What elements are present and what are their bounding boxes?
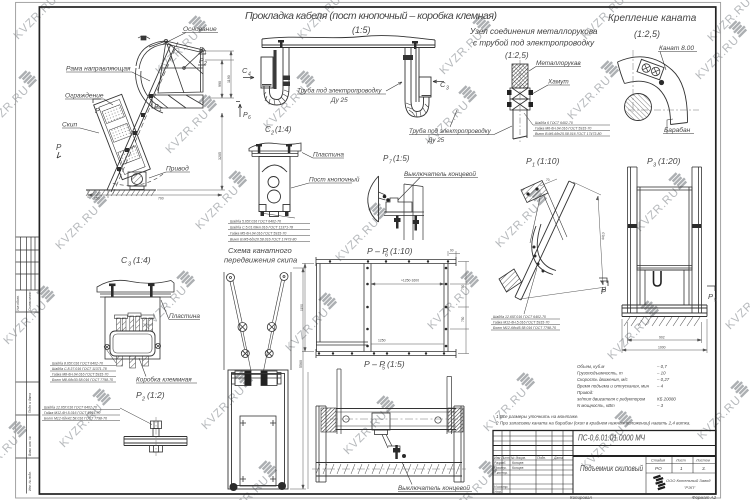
svg-text:3: 3 (446, 86, 449, 92)
svg-text:Ограждение: Ограждение (65, 92, 104, 100)
svg-text:Инв. № подл.: Инв. № подл. (28, 471, 32, 491)
svg-text:Винт В.М6-6дх25.58.016 ГОСТ 17: Винт В.М6-6дх25.58.016 ГОСТ 17473-80 (535, 132, 601, 136)
svg-text:(1:20): (1:20) (658, 156, 681, 166)
svg-text:– 4: – 4 (656, 384, 664, 389)
svg-text:– 0,27: – 0,27 (656, 377, 670, 382)
svg-text:150: 150 (94, 197, 100, 201)
svg-text:Болт М8-6дх30.58.016 ГОСТ 7798: Болт М8-6дх30.58.016 ГОСТ 7798-70 (52, 378, 113, 382)
svg-text:РО: РО (655, 466, 662, 471)
svg-text:Объем, куб.м: Объем, куб.м (577, 364, 604, 369)
svg-text:Копцев: Копцев (512, 461, 524, 465)
svg-text:– 3: – 3 (656, 403, 664, 408)
svg-text:Винт В.М5-6дх20.58.016 ГОСТ 17: Винт В.М5-6дх20.58.016 ГОСТ 17473-80 (230, 238, 296, 242)
svg-text:Пластина: Пластина (169, 313, 200, 320)
svg-text:6: 6 (385, 253, 389, 259)
svg-text:Утв.: Утв. (494, 490, 502, 494)
svg-text:Схема канатного: Схема канатного (228, 246, 292, 255)
svg-text:Шайба 12.65Г.016 ГОСТ 6402-70: Шайба 12.65Г.016 ГОСТ 6402-70 (493, 315, 546, 319)
svg-text:– 10: – 10 (656, 371, 666, 376)
svg-text:Гайка М5-6Н.04.016 ГОСТ 5915-7: Гайка М5-6Н.04.016 ГОСТ 5915-70 (230, 232, 286, 236)
svg-text:Узел соединения металлорукова: Узел соединения металлорукова (469, 27, 598, 36)
svg-text:2: 2 (270, 131, 274, 137)
svg-text:– 0,7: – 0,7 (656, 364, 667, 369)
svg-text:1 Все размеры уточнить на монт: 1 Все размеры уточнить на монтаже. (496, 414, 579, 419)
svg-text:Время подъема и отпускания, ми: Время подъема и отпускания, мин (577, 384, 650, 389)
svg-text:990: 990 (218, 81, 222, 87)
svg-text:(1:4): (1:4) (133, 255, 151, 265)
svg-text:Подп. и дата: Подп. и дата (28, 393, 32, 413)
svg-text:КБ 20080: КБ 20080 (657, 397, 676, 402)
svg-text:Пост кнопочный: Пост кнопочный (309, 176, 360, 184)
svg-text:Подп.: Подп. (537, 456, 546, 460)
svg-text:Пластина: Пластина (313, 152, 344, 159)
svg-text:Канат 8.00: Канат 8.00 (659, 45, 694, 52)
svg-text:Прокладка кабеля (пост кнопочн: Прокладка кабеля (пост кнопочный – короб… (245, 10, 497, 22)
svg-text:1250: 1250 (378, 339, 386, 343)
svg-text:Дата: Дата (553, 456, 563, 460)
svg-text:Основание: Основание (183, 26, 217, 33)
svg-text:Разраб.: Разраб. (494, 461, 506, 465)
svg-text:Болт М12-6дх45.58.016 ГОСТ 779: Болт М12-6дх45.58.016 ГОСТ 7798-70 (493, 326, 556, 330)
svg-text:750: 750 (461, 284, 465, 290)
svg-text:7: 7 (389, 160, 392, 166)
svg-text:передвижения скипа: передвижения скипа (224, 256, 297, 265)
svg-text:Выключатель концевой: Выключатель концевой (404, 170, 476, 178)
svg-text:Н.контр.: Н.контр. (494, 485, 508, 489)
svg-text:Лист: Лист (675, 459, 686, 463)
svg-text:1: 1 (159, 107, 162, 113)
svg-text:Взам. инв. №: Взам. инв. № (28, 436, 32, 456)
svg-text:Привод:: Привод: (577, 390, 594, 395)
svg-text:Р: Р (601, 287, 606, 296)
svg-text:с трубой под электропроводку: с трубой под электропроводку (473, 39, 595, 48)
svg-text:(1:2,5): (1:2,5) (634, 29, 660, 39)
svg-text:Коробка клеммная: Коробка клеммная (136, 376, 192, 384)
svg-text:Р: Р (56, 143, 62, 152)
svg-text:(1:10): (1:10) (537, 156, 560, 166)
svg-text:1190: 1190 (227, 75, 231, 83)
svg-text:1150: 1150 (300, 304, 304, 311)
svg-text:Шайба С.8.37.016 ГОСТ 11371-78: Шайба С.8.37.016 ГОСТ 11371-78 (52, 367, 107, 371)
svg-text:3205: 3205 (218, 152, 222, 160)
svg-text:3: 3 (128, 262, 132, 268)
svg-text:Рама направляющая: Рама направляющая (66, 66, 131, 73)
svg-text:Шайба 12.65Г.016 ГОСТ 6402-70: Шайба 12.65Г.016 ГОСТ 6402-70 (44, 406, 97, 410)
svg-text:Гайка М6-6Н.04.016 ГОСТ 5915-7: Гайка М6-6Н.04.016 ГОСТ 5915-70 (535, 127, 591, 131)
svg-text:С: С (121, 255, 128, 265)
svg-text:Грузоподъемность, т: Грузоподъемность, т (577, 371, 623, 376)
svg-text:Хамут: Хамут (547, 79, 569, 86)
svg-text:Гайка М12-6Н.5.016 ГОСТ 5915-7: Гайка М12-6Н.5.016 ГОСТ 5915-70 (44, 411, 100, 415)
svg-text:5560: 5560 (299, 360, 303, 368)
svg-text:2: 2 (141, 397, 145, 403)
svg-text:Подъемник скиповый: Подъемник скиповый (580, 464, 644, 473)
svg-text:Стадия: Стадия (651, 459, 665, 463)
svg-text:Шайба 5.65Г.016 ГОСТ 6402-70: Шайба 5.65Г.016 ГОСТ 6402-70 (230, 220, 281, 224)
svg-text:5: 5 (714, 298, 717, 304)
svg-text:3.: 3. (702, 466, 706, 471)
svg-text:2: 2 (203, 61, 207, 67)
svg-text:Болт М12-6дх42.58.016 ГОСТ 779: Болт М12-6дх42.58.016 ГОСТ 7798-70 (44, 417, 107, 421)
svg-text:Усл.обозн.: Усл.обозн. (16, 295, 20, 311)
svg-text:Листов: Листов (695, 459, 710, 463)
svg-text:№ докум.: № докум. (511, 456, 526, 460)
svg-text:ПС-0,6.01.01.0000 МЧ: ПС-0,6.01.01.0000 МЧ (578, 433, 645, 443)
svg-text:902: 902 (659, 336, 665, 340)
svg-text:Труба под электропроводку: Труба под электропроводку (297, 87, 382, 95)
svg-text:Выключатель концевой: Выключатель концевой (398, 484, 470, 492)
svg-text:70: 70 (546, 178, 550, 182)
svg-text:Барабан: Барабан (664, 126, 691, 134)
svg-text:Копцев: Копцев (512, 466, 524, 470)
svg-text:Скип: Скип (62, 122, 78, 129)
svg-text:≈1250-1600: ≈1250-1600 (401, 279, 419, 283)
svg-text:Металлорукав: Металлорукав (536, 60, 581, 67)
svg-text:(1:5): (1:5) (393, 154, 410, 163)
svg-text:"РЭП": "РЭП" (684, 485, 696, 490)
svg-text:3: 3 (653, 163, 657, 169)
svg-text:5: 5 (382, 366, 386, 372)
svg-text:Провер.: Провер. (494, 466, 507, 470)
svg-text:6: 6 (248, 115, 251, 121)
svg-text:1: 1 (204, 50, 207, 56)
svg-text:1: 1 (680, 466, 683, 471)
svg-text:эл/тип двигателя с редуктором: эл/тип двигателя с редуктором (577, 397, 645, 402)
svg-text:Привод: Привод (166, 165, 189, 173)
svg-text:Р: Р (95, 108, 100, 115)
svg-text:Шайба 6 ГОСТ 6402-70: Шайба 6 ГОСТ 6402-70 (535, 121, 573, 125)
svg-text:(1:5): (1:5) (352, 25, 371, 35)
svg-text:Формат А2: Формат А2 (692, 495, 717, 500)
svg-text:4410: 4410 (601, 232, 606, 240)
svg-text:ООО Котельный Завод: ООО Котельный Завод (666, 478, 711, 483)
svg-text:Ду 25: Ду 25 (427, 137, 445, 144)
svg-text:90: 90 (450, 249, 454, 253)
svg-text:(1:2,5): (1:2,5) (505, 51, 529, 60)
svg-text:2 При запасовки каната на бара: 2 При запасовки каната на барабан (скип … (495, 420, 691, 426)
svg-text:750: 750 (461, 316, 465, 322)
svg-text:Шайба 8.65Г.016 ГОСТ 6402-70: Шайба 8.65Г.016 ГОСТ 6402-70 (52, 362, 103, 366)
svg-text:Т.контр.: Т.контр. (494, 471, 508, 475)
svg-text:1: 1 (532, 163, 535, 169)
svg-text:(1:2): (1:2) (147, 390, 165, 400)
svg-text:Изм Лист: Изм Лист (494, 456, 510, 460)
svg-text:Согласовано: Согласовано (28, 291, 32, 311)
svg-text:Р: Р (708, 292, 713, 301)
svg-text:Труба под электропроводку: Труба под электропроводку (409, 128, 492, 135)
svg-text:Ду 25: Ду 25 (330, 97, 348, 104)
svg-text:(1:5): (1:5) (387, 359, 405, 369)
svg-text:700: 700 (158, 197, 164, 201)
svg-text:Скорость движения, м/с: Скорость движения, м/с (577, 377, 628, 382)
svg-text:Гайка М8-6Н.04.016 ГОСТ 5915-7: Гайка М8-6Н.04.016 ГОСТ 5915-70 (52, 373, 108, 377)
svg-text:(1:4): (1:4) (275, 125, 292, 134)
svg-text:(1:10): (1:10) (390, 246, 413, 256)
svg-text:Гайка М12-6Н.5.016 ГОСТ 5915-7: Гайка М12-6Н.5.016 ГОСТ 5915-70 (493, 321, 549, 325)
svg-text:1000: 1000 (658, 346, 666, 350)
svg-text:N мощность, кВт: N мощность, кВт (577, 403, 615, 408)
svg-text:Крепление каната: Крепление каната (608, 13, 697, 24)
svg-text:Копировал: Копировал (570, 495, 592, 500)
svg-text:Шайба С.5.01.08кп.016 ГОСТ 113: Шайба С.5.01.08кп.016 ГОСТ 11371-78 (230, 226, 293, 230)
